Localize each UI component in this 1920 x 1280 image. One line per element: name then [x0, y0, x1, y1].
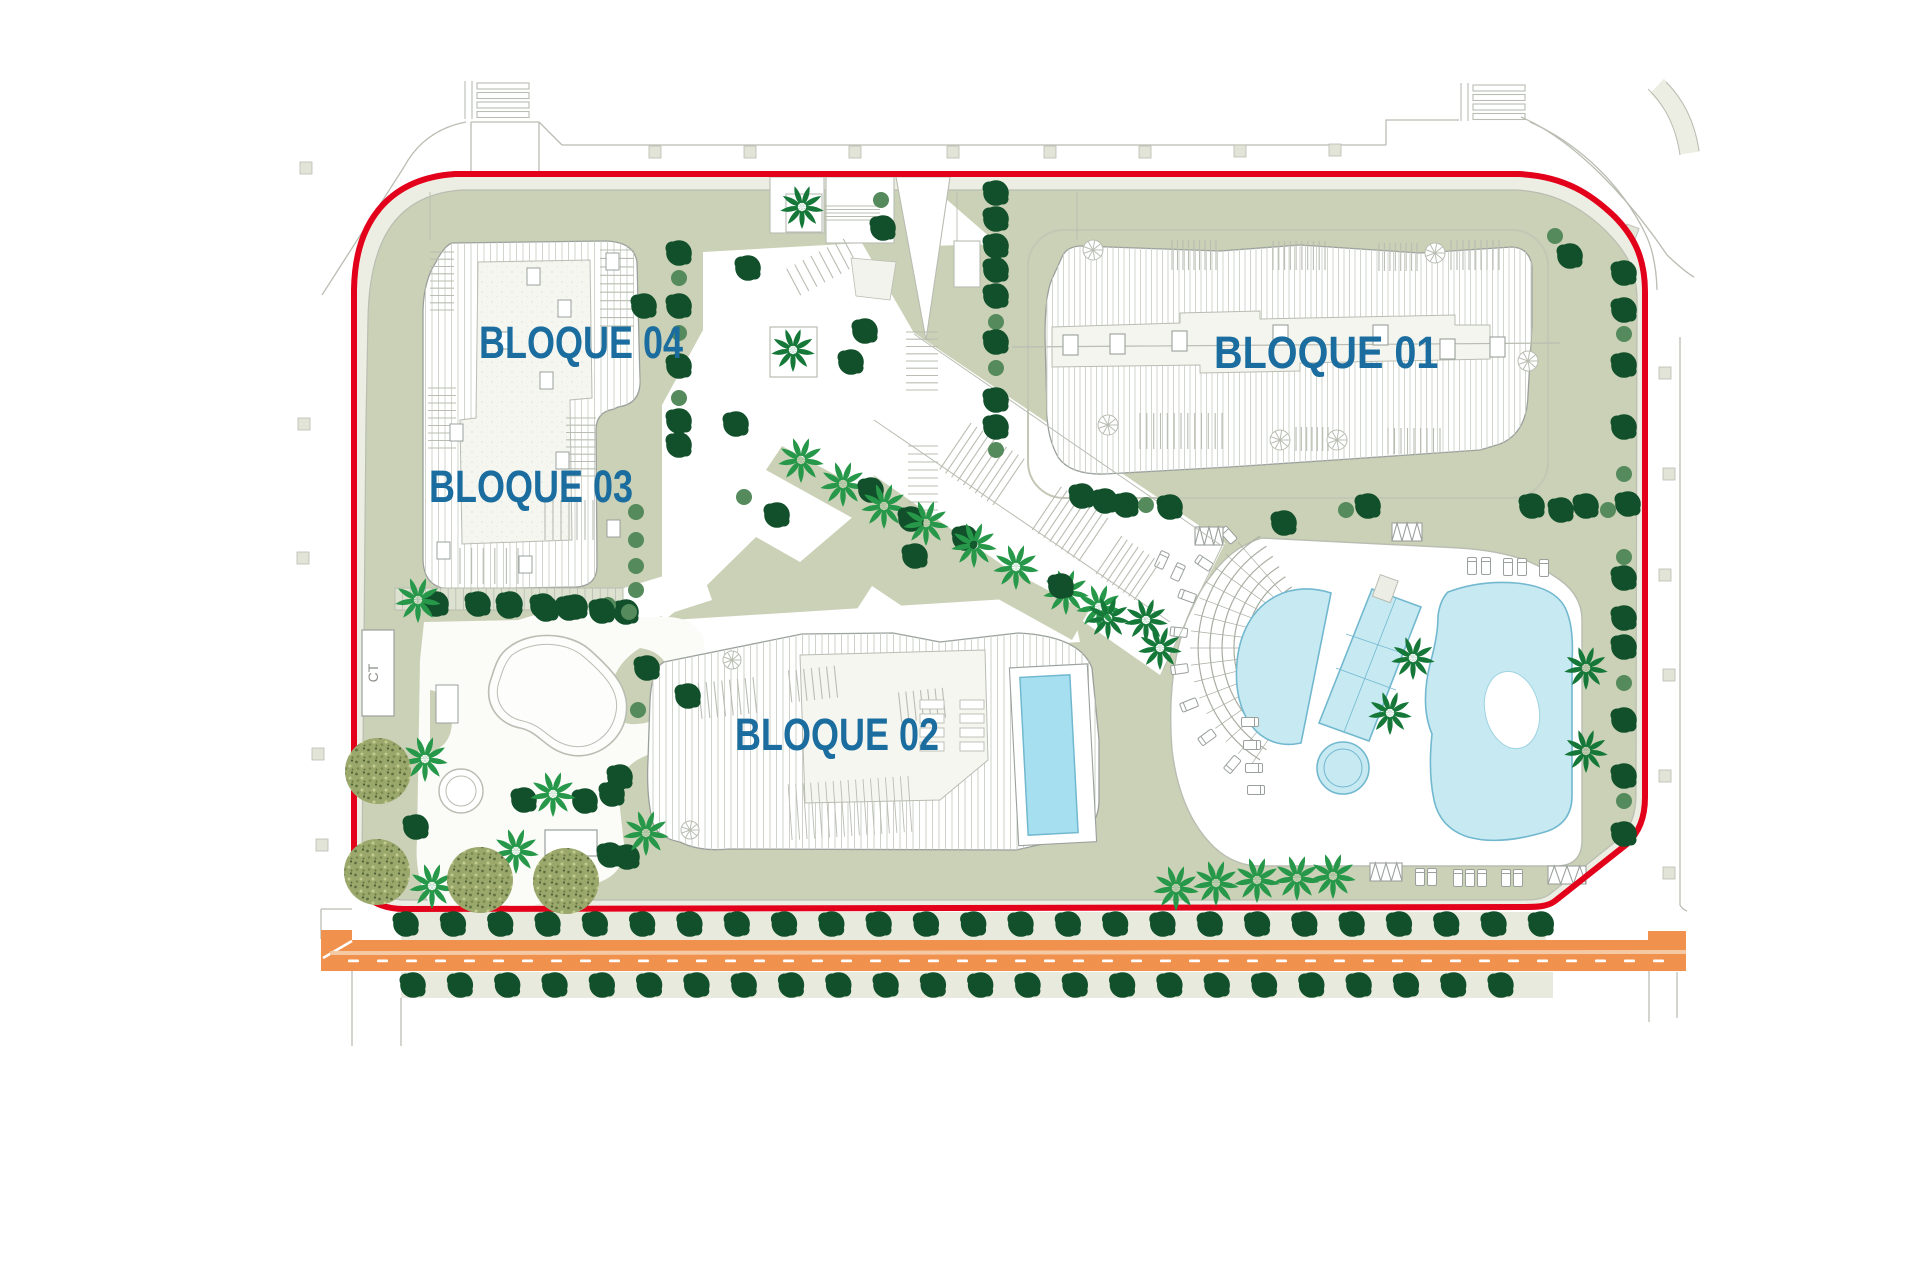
- svg-text:BLOQUE 01: BLOQUE 01: [1214, 328, 1438, 378]
- svg-text:BLOQUE 03: BLOQUE 03: [429, 461, 633, 512]
- svg-text:CT: CT: [365, 663, 381, 682]
- svg-text:BLOQUE 02: BLOQUE 02: [735, 709, 939, 760]
- svg-text:BLOQUE 04: BLOQUE 04: [479, 317, 683, 368]
